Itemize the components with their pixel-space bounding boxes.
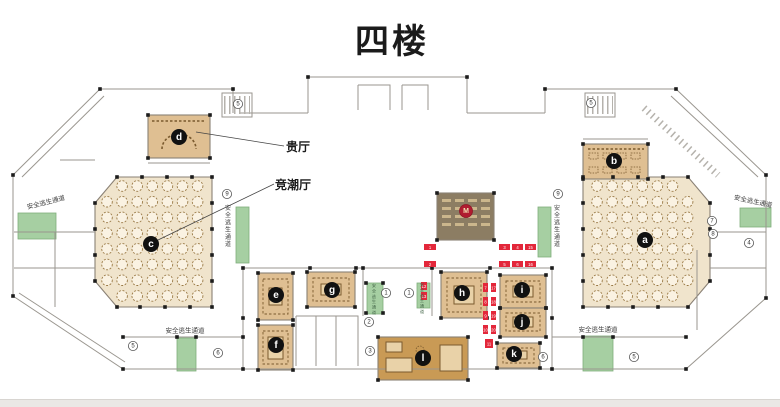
banquet-table: [652, 244, 663, 255]
column: [646, 177, 650, 181]
escape-zone-2: [236, 207, 249, 263]
banquet-table: [177, 244, 188, 255]
m-room-seat-row: [442, 215, 451, 218]
banquet-table: [147, 291, 158, 302]
column: [354, 266, 358, 270]
banquet-table: [132, 259, 143, 270]
m-room-seat-row: [481, 223, 490, 226]
column: [550, 367, 554, 371]
banquet-table: [622, 181, 633, 192]
banquet-table: [667, 212, 678, 223]
banquet-table: [177, 228, 188, 239]
room-letter-d: d: [176, 132, 182, 143]
column: [498, 273, 502, 277]
column: [291, 368, 295, 372]
banquet-table: [117, 228, 128, 239]
banquet-table: [192, 275, 203, 286]
column: [492, 238, 496, 242]
banquet-table: [637, 275, 648, 286]
column: [364, 311, 368, 315]
banquet-table: [592, 228, 603, 239]
banquet-table: [652, 275, 663, 286]
column: [376, 378, 380, 382]
banquet-table: [192, 259, 203, 270]
banquet-table: [622, 244, 633, 255]
room-letter-l: l: [422, 353, 425, 364]
banquet-table: [592, 291, 603, 302]
m-room-seat-row: [455, 199, 464, 202]
banquet-table: [652, 228, 663, 239]
escape-label-1: 安全逃生通道: [26, 193, 67, 211]
banquet-table: [607, 275, 618, 286]
banquet-table: [177, 212, 188, 223]
banquet-table: [162, 259, 173, 270]
column: [256, 271, 260, 275]
column: [93, 279, 97, 283]
escape-label-3: 安全逃生通道: [554, 204, 560, 248]
banquet-table: [637, 259, 648, 270]
banquet-table: [162, 196, 173, 207]
column: [686, 305, 690, 309]
banquet-table: [102, 228, 113, 239]
column: [581, 142, 585, 146]
column: [93, 201, 97, 205]
banquet-table: [622, 212, 633, 223]
banquet-table: [177, 291, 188, 302]
room-letter-g: g: [329, 285, 335, 296]
conference-table: [386, 342, 402, 352]
exit-marker-number: 15: [528, 245, 533, 250]
vip-hall-label: 贵厅: [286, 138, 310, 155]
banquet-table: [652, 181, 663, 192]
column: [93, 253, 97, 257]
room-letter-c: c: [148, 239, 154, 250]
banquet-table: [652, 291, 663, 302]
page-edge-band: [0, 399, 780, 407]
banquet-table: [622, 196, 633, 207]
column: [121, 335, 125, 339]
banquet-table: [117, 259, 128, 270]
m-room-seat-row: [481, 199, 490, 202]
banquet-table: [177, 275, 188, 286]
column: [210, 201, 214, 205]
banquet-table: [117, 244, 128, 255]
column: [581, 335, 585, 339]
banquet-table: [102, 196, 113, 207]
column: [485, 270, 489, 274]
column: [544, 306, 548, 310]
column: [188, 305, 192, 309]
column: [241, 266, 245, 270]
column: [306, 75, 310, 79]
column: [543, 87, 547, 91]
column: [121, 367, 125, 371]
floor-plan-canvas: abcdefghijklM123415561671781891910201112…: [0, 0, 780, 407]
banquet-table: [147, 196, 158, 207]
banquet-table: [592, 181, 603, 192]
banquet-table: [192, 181, 203, 192]
room-letter-e: e: [273, 290, 279, 301]
column: [439, 316, 443, 320]
column: [581, 177, 585, 181]
column: [210, 175, 214, 179]
column: [674, 87, 678, 91]
banquet-table: [667, 259, 678, 270]
column: [439, 270, 443, 274]
column: [492, 191, 496, 195]
banquet-table: [117, 291, 128, 302]
escape-zone-1: [18, 213, 56, 239]
banquet-table: [667, 228, 678, 239]
main-hall-label: 竞潮厅: [275, 176, 311, 193]
m-room-seat-row: [442, 207, 451, 210]
banquet-table: [622, 259, 633, 270]
banquet-table: [117, 181, 128, 192]
column: [291, 318, 295, 322]
column: [381, 311, 385, 315]
column: [256, 323, 260, 327]
banquet-table: [637, 181, 648, 192]
banquet-table: [607, 259, 618, 270]
column: [231, 87, 235, 91]
banquet-table: [607, 196, 618, 207]
exit-marker-number: 11: [487, 341, 492, 346]
logo-m-letter: M: [463, 208, 469, 215]
column: [686, 175, 690, 179]
room-letter-j: j: [520, 317, 524, 328]
banquet-table: [652, 196, 663, 207]
banquet-table: [102, 244, 113, 255]
column: [115, 175, 119, 179]
column: [636, 175, 640, 179]
banquet-table: [592, 196, 603, 207]
banquet-table: [192, 291, 203, 302]
m-room-seat-row: [481, 215, 490, 218]
banquet-table: [682, 212, 693, 223]
column: [581, 227, 585, 231]
wall-10: [671, 96, 758, 177]
column: [581, 305, 585, 309]
column: [210, 253, 214, 257]
banquet-table: [667, 181, 678, 192]
banquet-table: [132, 291, 143, 302]
column: [291, 271, 295, 275]
column: [138, 305, 142, 309]
column: [190, 175, 194, 179]
banquet-table: [192, 196, 203, 207]
banquet-table: [132, 244, 143, 255]
banquet-table: [102, 212, 113, 223]
column: [210, 305, 214, 309]
column: [376, 335, 380, 339]
column: [661, 175, 665, 179]
banquet-table: [162, 212, 173, 223]
banquet-table: [177, 196, 188, 207]
column: [611, 335, 615, 339]
banquet-table: [667, 244, 678, 255]
column: [210, 279, 214, 283]
banquet-table: [162, 275, 173, 286]
escape-label-4: 安全逃生通道: [166, 326, 206, 335]
column: [146, 113, 150, 117]
banquet-table: [682, 244, 693, 255]
banquet-table: [177, 181, 188, 192]
banquet-table: [102, 259, 113, 270]
banquet-table: [592, 212, 603, 223]
column: [11, 294, 15, 298]
column: [498, 306, 502, 310]
m-room-seat-row: [442, 223, 451, 226]
column: [495, 366, 499, 370]
banquet-table: [607, 212, 618, 223]
escape-zone-7: [583, 336, 613, 371]
column: [208, 156, 212, 160]
banquet-table: [132, 228, 143, 239]
column: [194, 335, 198, 339]
banquet-table: [132, 196, 143, 207]
banquet-table: [622, 228, 633, 239]
column: [538, 366, 542, 370]
column: [466, 378, 470, 382]
page-title: 四楼: [292, 14, 492, 63]
column: [435, 238, 439, 242]
column: [93, 227, 97, 231]
banquet-table: [622, 291, 633, 302]
column: [495, 341, 499, 345]
banquet-table: [132, 275, 143, 286]
exit-marker-number: 16: [528, 262, 533, 267]
banquet-table: [117, 275, 128, 286]
column: [611, 175, 615, 179]
banquet-table: [652, 212, 663, 223]
banquet-table: [682, 259, 693, 270]
column: [708, 253, 712, 257]
column: [466, 335, 470, 339]
column: [684, 335, 688, 339]
column: [353, 270, 357, 274]
exit-marker-number: 17: [491, 285, 496, 290]
wall-9: [19, 293, 125, 362]
column: [550, 266, 554, 270]
banquet-table: [607, 244, 618, 255]
column: [210, 227, 214, 231]
m-room-seat-row: [442, 199, 451, 202]
banquet-table: [667, 291, 678, 302]
column: [631, 305, 635, 309]
column: [146, 156, 150, 160]
banquet-table: [682, 196, 693, 207]
column: [165, 175, 169, 179]
column: [11, 173, 15, 177]
room-letter-b: b: [611, 156, 617, 167]
exit-marker-number: 19: [491, 313, 496, 318]
banquet-table: [132, 212, 143, 223]
m-room-seat-row: [481, 207, 490, 210]
banquet-table: [622, 275, 633, 286]
column: [291, 323, 295, 327]
column: [305, 305, 309, 309]
column: [381, 281, 385, 285]
exit-marker-number: 18: [491, 299, 496, 304]
column: [498, 335, 502, 339]
column: [646, 142, 650, 146]
m-room-seat-row: [468, 223, 477, 226]
escape-zone-6: [177, 338, 196, 371]
column: [435, 191, 439, 195]
column: [656, 305, 660, 309]
banquet-table: [147, 181, 158, 192]
banquet-table: [117, 212, 128, 223]
column: [364, 281, 368, 285]
column: [538, 341, 542, 345]
column: [163, 305, 167, 309]
banquet-table: [682, 228, 693, 239]
column: [544, 335, 548, 339]
column: [140, 175, 144, 179]
escape-label-2: 安全逃生通道: [225, 204, 231, 248]
column: [353, 305, 357, 309]
m-room-seat-row: [455, 223, 464, 226]
column: [708, 279, 712, 283]
banquet-table: [102, 275, 113, 286]
column: [241, 335, 245, 339]
exit-marker-number: 10: [483, 327, 488, 332]
banquet-table: [117, 196, 128, 207]
column: [581, 253, 585, 257]
banquet-table: [162, 291, 173, 302]
banquet-table: [607, 228, 618, 239]
column: [708, 201, 712, 205]
wall-22: [358, 85, 390, 110]
banquet-table: [637, 196, 648, 207]
column: [175, 335, 179, 339]
room-letter-h: h: [459, 288, 465, 299]
column: [305, 270, 309, 274]
banquet-table: [607, 291, 618, 302]
column: [208, 113, 212, 117]
column: [581, 279, 585, 283]
column: [488, 266, 492, 270]
column: [764, 173, 768, 177]
banquet-table: [637, 212, 648, 223]
banquet-table: [162, 244, 173, 255]
room-letter-a: a: [642, 235, 648, 246]
column: [606, 305, 610, 309]
banquet-table: [147, 212, 158, 223]
wall-18: [296, 316, 358, 366]
banquet-table: [192, 228, 203, 239]
banquet-table: [592, 259, 603, 270]
banquet-table: [667, 275, 678, 286]
escape-label-5: 安全逃生通道: [579, 325, 619, 334]
column: [684, 367, 688, 371]
column: [581, 201, 585, 205]
banquet-table: [607, 181, 618, 192]
column: [764, 296, 768, 300]
column: [98, 87, 102, 91]
banquet-table: [162, 181, 173, 192]
column: [256, 318, 260, 322]
column: [256, 368, 260, 372]
banquet-table: [192, 244, 203, 255]
banquet-table: [592, 244, 603, 255]
column: [241, 367, 245, 371]
column: [544, 273, 548, 277]
column: [361, 266, 365, 270]
room-letter-i: i: [521, 285, 524, 296]
column: [115, 305, 119, 309]
banquet-table: [147, 275, 158, 286]
banquet-table: [667, 196, 678, 207]
conference-table: [440, 345, 462, 371]
banquet-table: [177, 259, 188, 270]
column: [308, 266, 312, 270]
banquet-table: [132, 181, 143, 192]
column: [241, 316, 245, 320]
conference-table: [386, 358, 412, 372]
wall-23: [402, 85, 428, 110]
banquet-table: [682, 275, 693, 286]
escape-zone-3: [538, 207, 551, 257]
banquet-table: [592, 275, 603, 286]
room-letter-k: k: [511, 349, 517, 360]
banquet-table: [652, 259, 663, 270]
banquet-table: [147, 259, 158, 270]
escape-label-6: 安全逃生通道: [733, 193, 774, 210]
column: [550, 316, 554, 320]
column: [465, 75, 469, 79]
exit-marker-number: 20: [491, 327, 496, 332]
m-room-seat-row: [468, 199, 477, 202]
banquet-table: [637, 291, 648, 302]
wall-8: [22, 96, 104, 177]
